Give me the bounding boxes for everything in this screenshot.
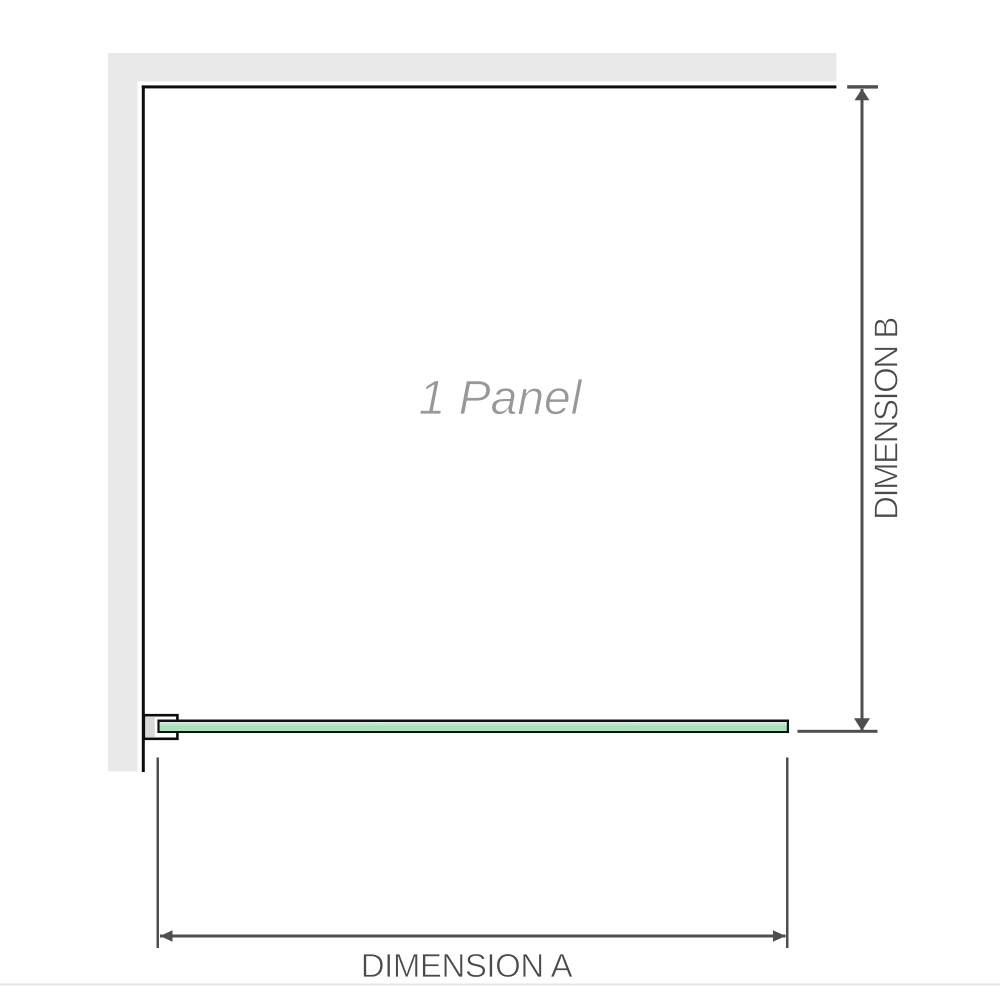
svg-text:DIMENSION B: DIMENSION B (868, 318, 905, 520)
svg-text:DIMENSION A: DIMENSION A (361, 947, 573, 984)
svg-text:1 Panel: 1 Panel (419, 372, 583, 425)
